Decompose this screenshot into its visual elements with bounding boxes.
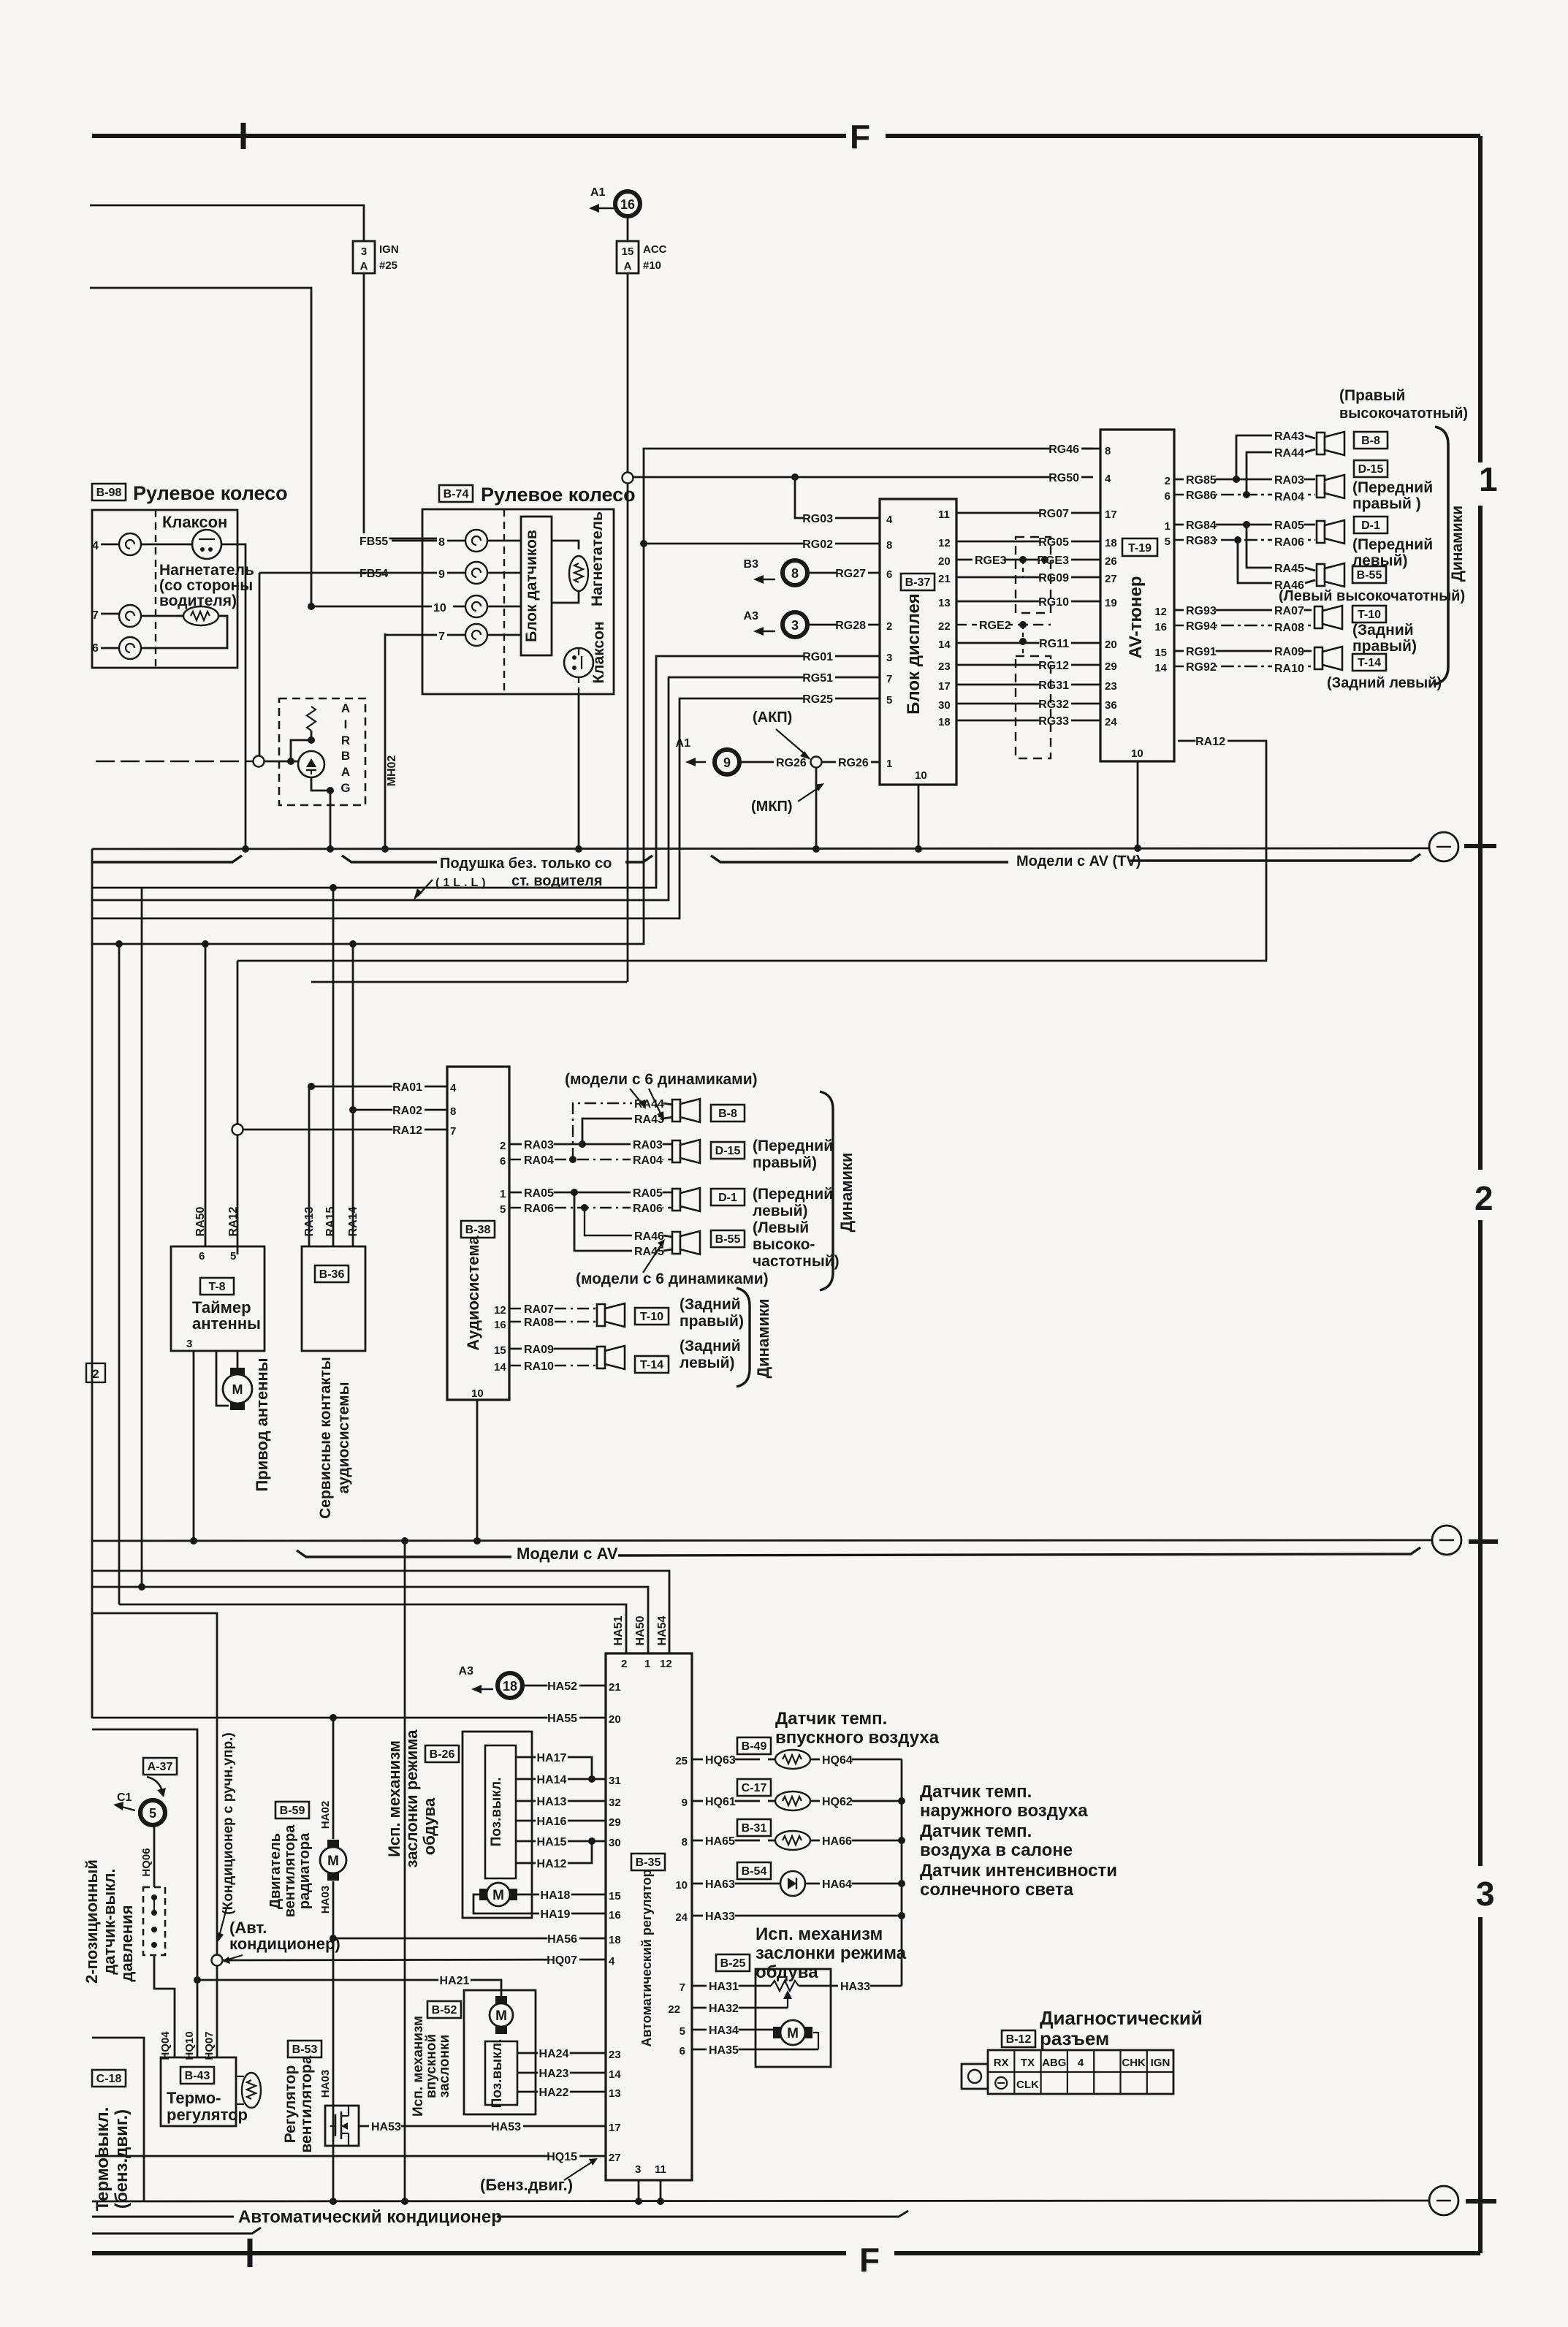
svg-text:Датчик интенсивности: Датчик интенсивности [920, 1861, 1117, 1881]
svg-text:RG46: RG46 [1048, 443, 1079, 456]
svg-text:10: 10 [471, 1387, 484, 1400]
svg-text:RG09: RG09 [1038, 572, 1069, 584]
svg-text:RG93: RG93 [1186, 605, 1217, 617]
svg-text:Датчик темп.: Датчик темп. [920, 1821, 1032, 1841]
svg-text:RG27: RG27 [835, 568, 866, 580]
svg-text:HA03: HA03 [319, 1886, 332, 1913]
svg-text:RG05: RG05 [1038, 536, 1069, 549]
svg-text:8: 8 [438, 536, 445, 549]
svg-text:4: 4 [450, 1082, 457, 1094]
svg-text:12: 12 [494, 1304, 506, 1317]
svg-text:2: 2 [500, 1140, 506, 1152]
svg-text:B-54: B-54 [742, 1865, 767, 1878]
svg-text:обдува: обдува [756, 1962, 818, 1982]
svg-text:MH02: MH02 [386, 755, 398, 787]
svg-text:D-1: D-1 [718, 1192, 737, 1204]
svg-text:RG07: RG07 [1038, 508, 1069, 520]
svg-text:Привод антенны: Привод антенны [253, 1357, 271, 1491]
svg-text:30: 30 [938, 699, 951, 712]
svg-text:(бенз.двиг.): (бенз.двиг.) [112, 2109, 132, 2209]
svg-text:RA10: RA10 [1274, 663, 1304, 675]
svg-text:RA05: RA05 [633, 1187, 663, 1200]
svg-text:3: 3 [361, 245, 367, 258]
svg-text:B: B [341, 749, 350, 763]
svg-text:36: 36 [1105, 699, 1117, 712]
svg-text:HA23: HA23 [539, 2068, 569, 2080]
svg-text:7: 7 [438, 631, 445, 643]
svg-text:D-15: D-15 [1358, 463, 1384, 476]
svg-text:12: 12 [660, 1658, 672, 1670]
svg-text:HA17: HA17 [537, 1752, 567, 1764]
svg-text:8: 8 [450, 1105, 456, 1118]
svg-text:аудиосистемы: аудиосистемы [335, 1382, 352, 1493]
svg-text:IGN: IGN [379, 243, 399, 256]
svg-text:B-8: B-8 [718, 1108, 737, 1120]
svg-text:солнечного света: солнечного света [920, 1880, 1074, 1900]
svg-text:A-37: A-37 [148, 1761, 173, 1773]
svg-text:правый ): правый ) [1352, 495, 1421, 512]
svg-text:B-31: B-31 [742, 1822, 767, 1835]
svg-text:RG25: RG25 [802, 693, 833, 706]
svg-text:(модели с 6 динамиками): (модели с 6 динамиками) [565, 1071, 758, 1088]
svg-text:(Задний: (Задний [1352, 622, 1414, 639]
svg-text:RA05: RA05 [1274, 519, 1304, 532]
svg-text:частотный): частотный) [753, 1253, 840, 1270]
svg-text:9: 9 [723, 755, 731, 770]
svg-text:радиатора: радиатора [297, 1832, 313, 1909]
svg-text:7: 7 [886, 673, 892, 685]
svg-text:(Правый: (Правый [1339, 387, 1405, 404]
svg-text:20: 20 [938, 555, 951, 568]
svg-text:2: 2 [621, 1658, 627, 1670]
svg-text:19: 19 [1105, 597, 1117, 609]
svg-text:RA08: RA08 [1274, 622, 1304, 634]
svg-text:RA04: RA04 [524, 1154, 554, 1167]
svg-text:Исп. механизм: Исп. механизм [756, 1924, 883, 1944]
svg-text:17: 17 [938, 680, 951, 693]
svg-text:B-36: B-36 [319, 1268, 345, 1281]
svg-text:RA07: RA07 [524, 1303, 554, 1316]
svg-text:RA03: RA03 [1274, 474, 1304, 487]
svg-text:Динамики: Динамики [1449, 506, 1466, 582]
svg-text:B-43: B-43 [185, 2070, 210, 2082]
svg-text:HA64: HA64 [822, 1878, 852, 1891]
svg-text:давления: давления [118, 1905, 136, 1981]
svg-text:B-49: B-49 [742, 1740, 767, 1753]
svg-text:HQ61: HQ61 [705, 1796, 736, 1808]
svg-text:B-37: B-37 [905, 576, 931, 589]
svg-text:T-19: T-19 [1128, 542, 1152, 555]
svg-text:B-52: B-52 [432, 2004, 457, 2016]
svg-text:Клаксон: Клаксон [590, 621, 607, 683]
svg-text:5: 5 [1165, 536, 1171, 548]
svg-text:3: 3 [886, 652, 892, 664]
svg-text:RG01: RG01 [802, 651, 833, 663]
svg-text:10: 10 [915, 769, 927, 782]
svg-text:B-25: B-25 [720, 1957, 746, 1970]
svg-text:HA52: HA52 [547, 1680, 577, 1693]
svg-text:HQ10: HQ10 [183, 2031, 196, 2060]
svg-text:27: 27 [609, 2152, 621, 2164]
svg-text:RA44: RA44 [1274, 447, 1304, 460]
svg-text:Термо-: Термо- [167, 2089, 221, 2107]
svg-text:RA07: RA07 [1274, 605, 1304, 617]
svg-text:A: A [341, 701, 350, 715]
svg-text:заслонки режима: заслонки режима [756, 1943, 907, 1963]
svg-text:D-1: D-1 [1361, 519, 1380, 532]
svg-text:RA04: RA04 [633, 1154, 663, 1167]
svg-text:(Передний: (Передний [753, 1138, 833, 1154]
svg-text:23: 23 [1105, 680, 1117, 693]
svg-text:Исп. механизм: Исп. механизм [385, 1740, 403, 1857]
svg-text:20: 20 [1105, 639, 1117, 651]
svg-text:3: 3 [791, 618, 799, 633]
svg-text:(Задний левый): (Задний левый) [1327, 675, 1442, 691]
svg-text:RA04: RA04 [1274, 491, 1304, 503]
svg-text:(МКП): (МКП) [751, 799, 793, 815]
svg-text:10: 10 [675, 1879, 688, 1892]
svg-text:воздуха в салоне: воздуха в салоне [920, 1840, 1073, 1860]
svg-text:24: 24 [1105, 716, 1117, 728]
svg-text:7: 7 [680, 1981, 685, 1994]
svg-text:FB54: FB54 [359, 568, 388, 580]
svg-text:A3: A3 [744, 610, 759, 622]
svg-text:Автоматический регулятор: Автоматический регулятор [639, 1869, 654, 2046]
svg-text:(модели с 6 динамиками): (модели с 6 динамиками) [576, 1271, 769, 1287]
svg-text:Блок датчиков: Блок датчиков [523, 530, 540, 642]
svg-text:правый): правый) [680, 1313, 744, 1330]
svg-text:RA12: RA12 [1195, 736, 1225, 748]
svg-text:B-55: B-55 [715, 1233, 741, 1246]
svg-text:8: 8 [791, 566, 799, 581]
svg-text:HA18: HA18 [541, 1889, 571, 1902]
svg-text:(Задний: (Задний [680, 1338, 741, 1355]
svg-text:RA03: RA03 [524, 1139, 554, 1151]
svg-text:10: 10 [1131, 747, 1143, 760]
svg-text:A1: A1 [590, 186, 606, 199]
svg-text:HA53: HA53 [491, 2121, 521, 2133]
svg-text:29: 29 [609, 1816, 621, 1829]
svg-text:1: 1 [1479, 460, 1498, 498]
svg-text:RA08: RA08 [524, 1317, 554, 1329]
svg-text:Термовыкл.: Термовыкл. [93, 2107, 113, 2212]
svg-text:HQ63: HQ63 [705, 1754, 736, 1767]
svg-text:3: 3 [1476, 1875, 1495, 1913]
svg-text:RG32: RG32 [1038, 698, 1069, 711]
svg-text:6: 6 [1165, 490, 1171, 503]
svg-text:RG92: RG92 [1186, 661, 1217, 674]
svg-text:HQ07: HQ07 [547, 1954, 577, 1967]
svg-text:Сервисные контакты: Сервисные контакты [317, 1357, 334, 1519]
svg-text:RA09: RA09 [1274, 646, 1304, 658]
svg-text:HQ06: HQ06 [140, 1848, 153, 1876]
svg-text:наружного воздуха: наружного воздуха [920, 1801, 1088, 1821]
svg-text:RG51: RG51 [802, 672, 833, 685]
svg-text:5: 5 [230, 1250, 236, 1262]
svg-text:#10: #10 [643, 259, 661, 272]
svg-text:правый): правый) [1352, 638, 1417, 655]
svg-text:13: 13 [609, 2087, 621, 2100]
svg-text:обдува: обдува [420, 1797, 438, 1855]
svg-text:правый): правый) [753, 1154, 817, 1171]
svg-text:Поз.выкл.: Поз.выкл. [490, 2039, 505, 2109]
svg-text:HA54: HA54 [656, 1615, 669, 1645]
svg-text:RG31: RG31 [1038, 679, 1069, 692]
svg-text:HA24: HA24 [539, 2048, 569, 2060]
svg-text:RA01: RA01 [392, 1081, 422, 1094]
svg-text:31: 31 [609, 1775, 621, 1787]
svg-text:RA45: RA45 [1274, 563, 1304, 575]
svg-text:T-10: T-10 [1358, 609, 1381, 621]
svg-text:B-53: B-53 [292, 2044, 318, 2056]
svg-text:Рулевое колесо: Рулевое колесо [133, 482, 288, 504]
svg-text:HA55: HA55 [547, 1713, 577, 1725]
svg-text:M: M [495, 2008, 507, 2024]
svg-text:ABG: ABG [1042, 2057, 1066, 2069]
svg-text:30: 30 [609, 1837, 621, 1849]
svg-text:8: 8 [682, 1836, 688, 1848]
svg-text:1: 1 [500, 1188, 506, 1200]
svg-text:15: 15 [1154, 647, 1167, 659]
svg-text:18: 18 [609, 1934, 621, 1946]
svg-text:Датчик темп.: Датчик темп. [920, 1782, 1032, 1802]
svg-text:RA03: RA03 [633, 1139, 663, 1151]
svg-text:Регулятор: Регулятор [282, 2065, 299, 2144]
svg-text:Диагностический: Диагностический [1040, 2007, 1203, 2029]
svg-text:G: G [340, 781, 350, 795]
svg-text:9: 9 [682, 1797, 688, 1809]
svg-text:RG10: RG10 [1038, 596, 1069, 609]
svg-text:2-позиционный: 2-позиционный [83, 1859, 101, 1984]
svg-text:1: 1 [644, 1658, 650, 1670]
svg-text:15: 15 [609, 1890, 621, 1903]
svg-text:RG85: RG85 [1186, 474, 1217, 487]
svg-text:A3: A3 [459, 1665, 474, 1677]
svg-text:6: 6 [500, 1155, 506, 1168]
svg-text:Блок дисплея: Блок дисплея [904, 593, 924, 715]
svg-text:B-12: B-12 [1006, 2033, 1032, 2046]
svg-text:HQ62: HQ62 [822, 1796, 853, 1808]
svg-text:16: 16 [1154, 621, 1167, 633]
svg-text:Подушка без. только со: Подушка без. только со [440, 856, 612, 872]
svg-text:заслонки: заслонки [437, 2035, 452, 2098]
svg-text:Рулевое колесо: Рулевое колесо [481, 484, 636, 506]
svg-text:HA14: HA14 [537, 1774, 567, 1786]
svg-text:HA19: HA19 [541, 1908, 571, 1921]
svg-text:C-17: C-17 [742, 1782, 767, 1794]
svg-text:1: 1 [1165, 520, 1171, 533]
svg-text:RA02: RA02 [392, 1105, 422, 1117]
svg-text:RG26: RG26 [838, 757, 869, 769]
svg-text:Поз.выкл.: Поз.выкл. [489, 1778, 504, 1847]
svg-text:27: 27 [1105, 573, 1117, 585]
svg-text:Динамики: Динамики [754, 1298, 772, 1378]
svg-text:HA66: HA66 [822, 1835, 852, 1848]
svg-text:AV-тюнер: AV-тюнер [1126, 576, 1146, 659]
svg-text:7: 7 [450, 1125, 456, 1138]
svg-text:8: 8 [1105, 445, 1111, 457]
svg-text:M: M [327, 1854, 339, 1869]
svg-text:4: 4 [886, 514, 893, 526]
svg-text:21: 21 [609, 1681, 621, 1694]
svg-text:ACC: ACC [643, 243, 667, 256]
svg-text:HQ15: HQ15 [547, 2151, 577, 2163]
svg-text:1: 1 [886, 758, 892, 770]
svg-text:RG02: RG02 [802, 538, 833, 551]
svg-text:17: 17 [1105, 509, 1117, 521]
svg-text:4: 4 [92, 540, 99, 552]
svg-text:Модели с AV: Модели с AV [517, 1545, 618, 1563]
svg-text:22: 22 [668, 2003, 680, 2016]
svg-text:16: 16 [620, 197, 635, 212]
svg-text:(со стороны: (со стороны [159, 577, 253, 594]
svg-text:17: 17 [609, 2122, 621, 2134]
svg-text:C-18: C-18 [96, 2073, 122, 2085]
svg-text:(Левый высокочатотный): (Левый высокочатотный) [1279, 588, 1465, 604]
svg-text:4: 4 [609, 1955, 615, 1968]
svg-text:B-55: B-55 [1357, 569, 1382, 582]
svg-text:RA43: RA43 [1274, 430, 1304, 443]
svg-text:HA63: HA63 [705, 1878, 735, 1891]
svg-text:F: F [859, 2241, 880, 2279]
svg-text:15: 15 [622, 245, 634, 258]
svg-text:16: 16 [494, 1319, 506, 1331]
svg-text:T-14: T-14 [1358, 657, 1381, 669]
svg-text:B-74: B-74 [444, 488, 469, 500]
svg-text:левый): левый) [753, 1203, 808, 1219]
svg-text:B3: B3 [744, 558, 759, 571]
svg-text:6: 6 [886, 568, 892, 581]
svg-text:RG84: RG84 [1186, 519, 1217, 532]
svg-text:B-38: B-38 [465, 1224, 491, 1236]
svg-text:#25: #25 [379, 259, 397, 272]
svg-text:6: 6 [680, 2045, 685, 2057]
svg-text:RGE2: RGE2 [979, 620, 1011, 632]
svg-text:FB55: FB55 [359, 536, 388, 548]
svg-text:разъем: разъем [1040, 2027, 1109, 2049]
svg-text:RA06: RA06 [1274, 536, 1304, 549]
svg-text:R: R [341, 734, 350, 747]
svg-text:HA03: HA03 [319, 2070, 332, 2098]
svg-text:B-8: B-8 [1361, 435, 1380, 447]
svg-text:B-59: B-59 [280, 1805, 305, 1817]
svg-text:5: 5 [500, 1203, 506, 1216]
svg-text:Модели с AV (TV): Модели с AV (TV) [1016, 853, 1141, 869]
svg-text:RA46: RA46 [634, 1230, 664, 1243]
svg-text:2: 2 [886, 620, 892, 633]
svg-text:Нагнетатель: Нагнетатель [589, 511, 606, 606]
svg-text:RG03: RG03 [802, 513, 833, 525]
svg-text:23: 23 [609, 2049, 621, 2061]
svg-text:RA09: RA09 [524, 1344, 554, 1356]
svg-text:18: 18 [503, 1679, 517, 1694]
svg-text:2: 2 [92, 1367, 99, 1381]
svg-text:HA15: HA15 [537, 1836, 567, 1848]
svg-text:Аудиосистема: Аудиосистема [464, 1235, 482, 1351]
svg-text:14: 14 [1154, 662, 1167, 674]
svg-text:21: 21 [938, 573, 951, 585]
svg-text:3: 3 [186, 1338, 192, 1350]
svg-text:23: 23 [938, 660, 951, 673]
svg-text:вентилятора: вентилятора [298, 2055, 315, 2152]
svg-text:RG86: RG86 [1186, 490, 1217, 502]
svg-text:(АКП): (АКП) [753, 709, 792, 725]
svg-text:A: A [360, 260, 368, 273]
svg-text:(Передний: (Передний [1352, 479, 1433, 496]
svg-text:Клаксон: Клаксон [162, 513, 227, 531]
svg-text:HA13: HA13 [537, 1796, 567, 1808]
svg-text:HA16: HA16 [537, 1816, 567, 1828]
svg-text:RA05: RA05 [524, 1187, 554, 1200]
svg-text:18: 18 [938, 716, 951, 728]
svg-text:левый): левый) [680, 1355, 735, 1371]
svg-text:14: 14 [938, 639, 951, 651]
svg-text:RG91: RG91 [1186, 646, 1217, 658]
svg-text:RX: RX [994, 2057, 1009, 2069]
svg-text:A: A [341, 765, 350, 779]
svg-text:(Задний: (Задний [680, 1296, 741, 1313]
svg-text:RA10: RA10 [524, 1360, 554, 1373]
svg-text:6: 6 [199, 1250, 205, 1262]
svg-text:15: 15 [494, 1344, 506, 1357]
svg-text:14: 14 [494, 1361, 506, 1374]
svg-text:HA32: HA32 [709, 2003, 739, 2015]
svg-text:(Кондиционер с ручн.упр.): (Кондиционер с ручн.упр.) [221, 1732, 236, 1914]
svg-text:вентилятора: вентилятора [282, 1824, 298, 1918]
svg-text:HQ64: HQ64 [822, 1754, 853, 1767]
svg-text:5: 5 [886, 694, 892, 707]
svg-text:29: 29 [1105, 660, 1117, 673]
svg-text:13: 13 [938, 597, 951, 609]
svg-text:B-98: B-98 [96, 487, 122, 499]
svg-text:HA56: HA56 [547, 1933, 577, 1946]
svg-text:I: I [344, 717, 348, 731]
svg-text:RG28: RG28 [835, 620, 866, 632]
svg-text:HA02: HA02 [319, 1801, 332, 1829]
svg-text:высоко-: высоко- [753, 1236, 815, 1253]
svg-text:(Передний: (Передний [1352, 536, 1433, 553]
svg-text:RG50: RG50 [1048, 472, 1079, 484]
svg-text:20: 20 [609, 1713, 621, 1726]
svg-text:HA33: HA33 [705, 1911, 735, 1923]
svg-text:16: 16 [609, 1909, 621, 1922]
svg-text:Автоматический кондиционер: Автоматический кондиционер [238, 2207, 502, 2227]
svg-text:2: 2 [1474, 1179, 1493, 1217]
svg-text:11: 11 [938, 509, 950, 521]
svg-text:HA12: HA12 [537, 1858, 567, 1870]
svg-text:CHK: CHK [1122, 2057, 1146, 2069]
svg-text:4: 4 [1078, 2057, 1084, 2069]
svg-text:регулятор: регулятор [167, 2106, 248, 2124]
svg-text:32: 32 [609, 1797, 621, 1809]
svg-text:14: 14 [609, 2068, 621, 2081]
svg-text:11: 11 [655, 2163, 666, 2176]
svg-text:M: M [232, 1382, 243, 1397]
svg-text:22: 22 [938, 620, 951, 633]
svg-text:RG12: RG12 [1038, 660, 1069, 672]
svg-text:CLK: CLK [1016, 2079, 1039, 2091]
svg-text:(Передний: (Передний [753, 1186, 833, 1203]
svg-text:RG33: RG33 [1038, 715, 1069, 728]
svg-text:A: A [624, 260, 632, 273]
svg-text:RG94: RG94 [1186, 620, 1217, 633]
svg-text:6: 6 [92, 642, 99, 655]
svg-text:HQ07: HQ07 [203, 2031, 216, 2060]
svg-text:B-26: B-26 [430, 1748, 455, 1761]
svg-text:Датчик темп.: Датчик темп. [775, 1709, 887, 1729]
svg-text:3: 3 [635, 2163, 641, 2176]
svg-text:RA12: RA12 [392, 1124, 422, 1137]
